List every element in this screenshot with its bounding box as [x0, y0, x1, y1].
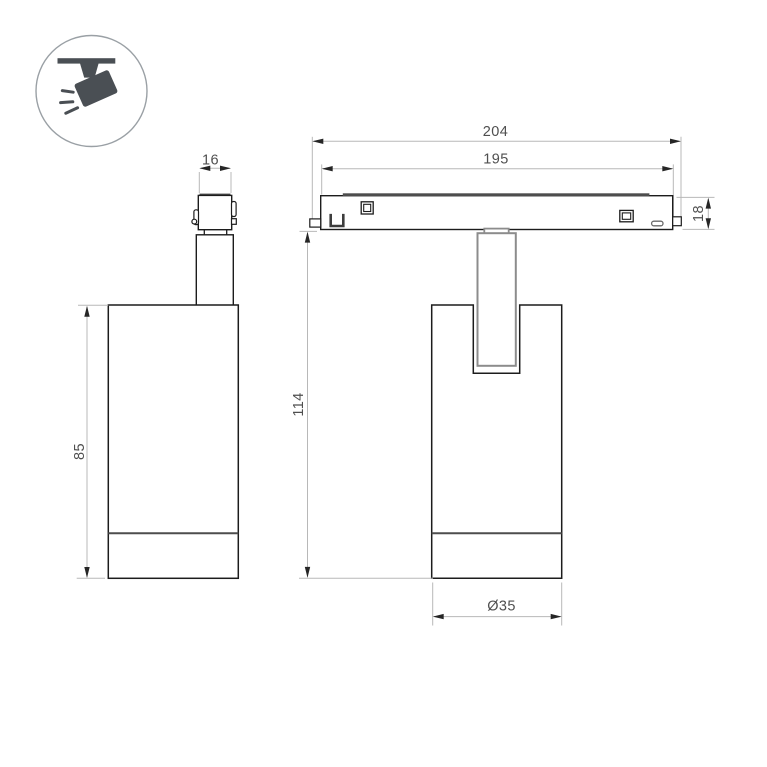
arrowhead — [670, 139, 681, 144]
rail-switch-inner — [622, 213, 630, 219]
front-view: 204 195 — [291, 124, 715, 626]
track-rail — [310, 193, 682, 229]
arrowhead — [551, 614, 562, 619]
arrowhead — [84, 306, 89, 317]
side-adapter — [192, 194, 236, 235]
icon-track-bar — [58, 58, 116, 63]
dimension-label-114: 114 — [291, 392, 307, 416]
dimension-16 — [199, 168, 231, 193]
stem-shaft — [478, 233, 516, 366]
rail-magnet-strip — [343, 193, 650, 196]
dimension-label-85: 85 — [72, 443, 88, 460]
track-spotlight-icon — [36, 36, 147, 147]
side-view: 16 85 — [72, 153, 238, 579]
dimension-114 — [299, 231, 433, 578]
dimension-label-18: 18 — [691, 205, 707, 222]
arrowhead — [662, 166, 673, 171]
dimension-85 — [77, 305, 109, 578]
rail-end-tab-right — [673, 217, 682, 226]
pivot-stem — [478, 229, 516, 366]
arrowhead — [312, 139, 323, 144]
adapter-tab-right — [232, 219, 237, 225]
arrowhead — [305, 567, 310, 578]
adapter-pin-left — [192, 219, 197, 224]
drawing-page: 16 85 — [0, 0, 767, 767]
side-lamp-body — [108, 305, 238, 578]
lamp-body-outline — [108, 305, 238, 578]
dimension-label-204: 204 — [483, 124, 508, 140]
arrowhead — [220, 166, 231, 171]
arrowhead — [322, 166, 333, 171]
adapter-body — [198, 195, 231, 229]
arrowhead — [305, 232, 310, 243]
arrowhead — [84, 567, 89, 578]
arrowhead — [433, 614, 444, 619]
rail-connector-socket-inner — [364, 204, 371, 211]
dimension-label-195: 195 — [483, 152, 508, 168]
dimension-label-16: 16 — [202, 153, 219, 169]
dimension-label-diameter-35: Ø35 — [487, 599, 516, 615]
rail-slot — [652, 221, 663, 226]
rail-end-tab-left — [310, 219, 321, 227]
adapter-latch-right — [232, 202, 237, 217]
light-ray — [61, 102, 73, 103]
light-ray — [62, 91, 73, 93]
side-arm — [196, 235, 233, 305]
technical-drawing: 16 85 — [0, 0, 767, 767]
